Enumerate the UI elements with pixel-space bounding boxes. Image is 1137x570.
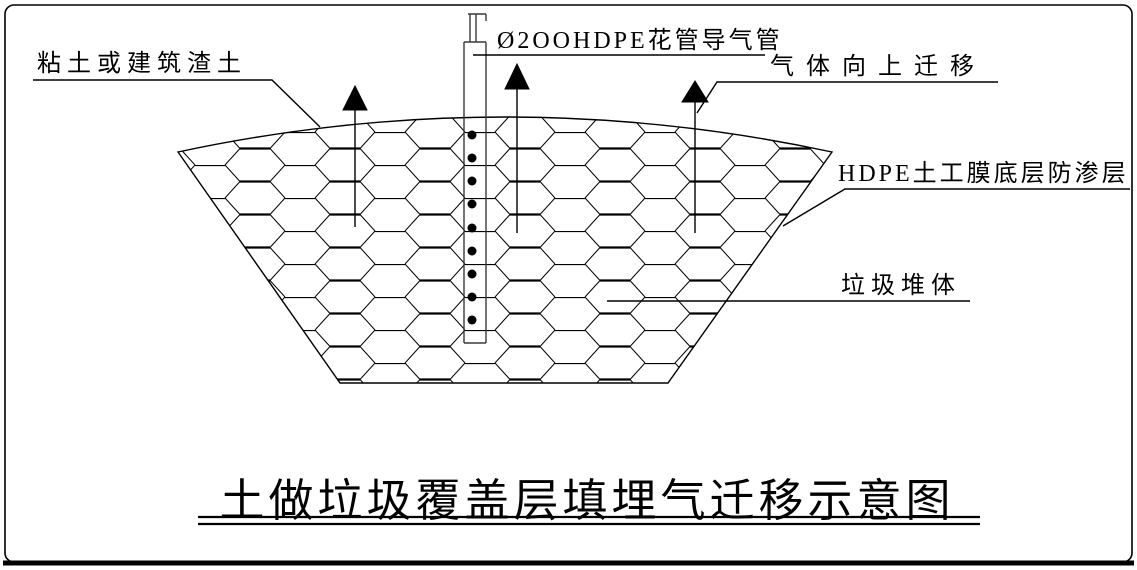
waste-body-shape	[178, 117, 832, 383]
perforation-hole	[468, 316, 477, 325]
gas-pipe-vent-cap	[468, 14, 486, 42]
perforation-hole	[468, 270, 477, 279]
perforation-hole	[468, 131, 477, 140]
perforation-hole	[468, 293, 477, 302]
perforation-hole	[468, 247, 477, 256]
landfill-gas-diagram: 粘土或建筑渣土 Ø2OOHDPE花管导气管 气体向上迁移 HDPE土工膜底层防渗…	[0, 0, 1137, 570]
label-gas-migration: 气体向上迁移	[770, 54, 986, 80]
diagram-title: 土做垃圾覆盖层填埋气迁移示意图	[202, 464, 972, 529]
pipe-perforations	[468, 131, 477, 325]
perforation-hole	[468, 177, 477, 186]
leader-cover-soil	[33, 80, 320, 127]
leader-gas-migration	[697, 82, 998, 113]
leader-hdpe-liner	[783, 189, 1130, 226]
label-waste-body: 垃圾堆体	[841, 273, 961, 299]
perforation-hole	[468, 200, 477, 209]
perforation-hole	[468, 224, 477, 233]
label-hdpe-liner: HDPE土工膜底层防渗层	[838, 161, 1129, 187]
perforation-hole	[468, 154, 477, 163]
label-gas-pipe: Ø2OOHDPE花管导气管	[497, 28, 783, 54]
label-cover-soil: 粘土或建筑渣土	[37, 51, 247, 77]
